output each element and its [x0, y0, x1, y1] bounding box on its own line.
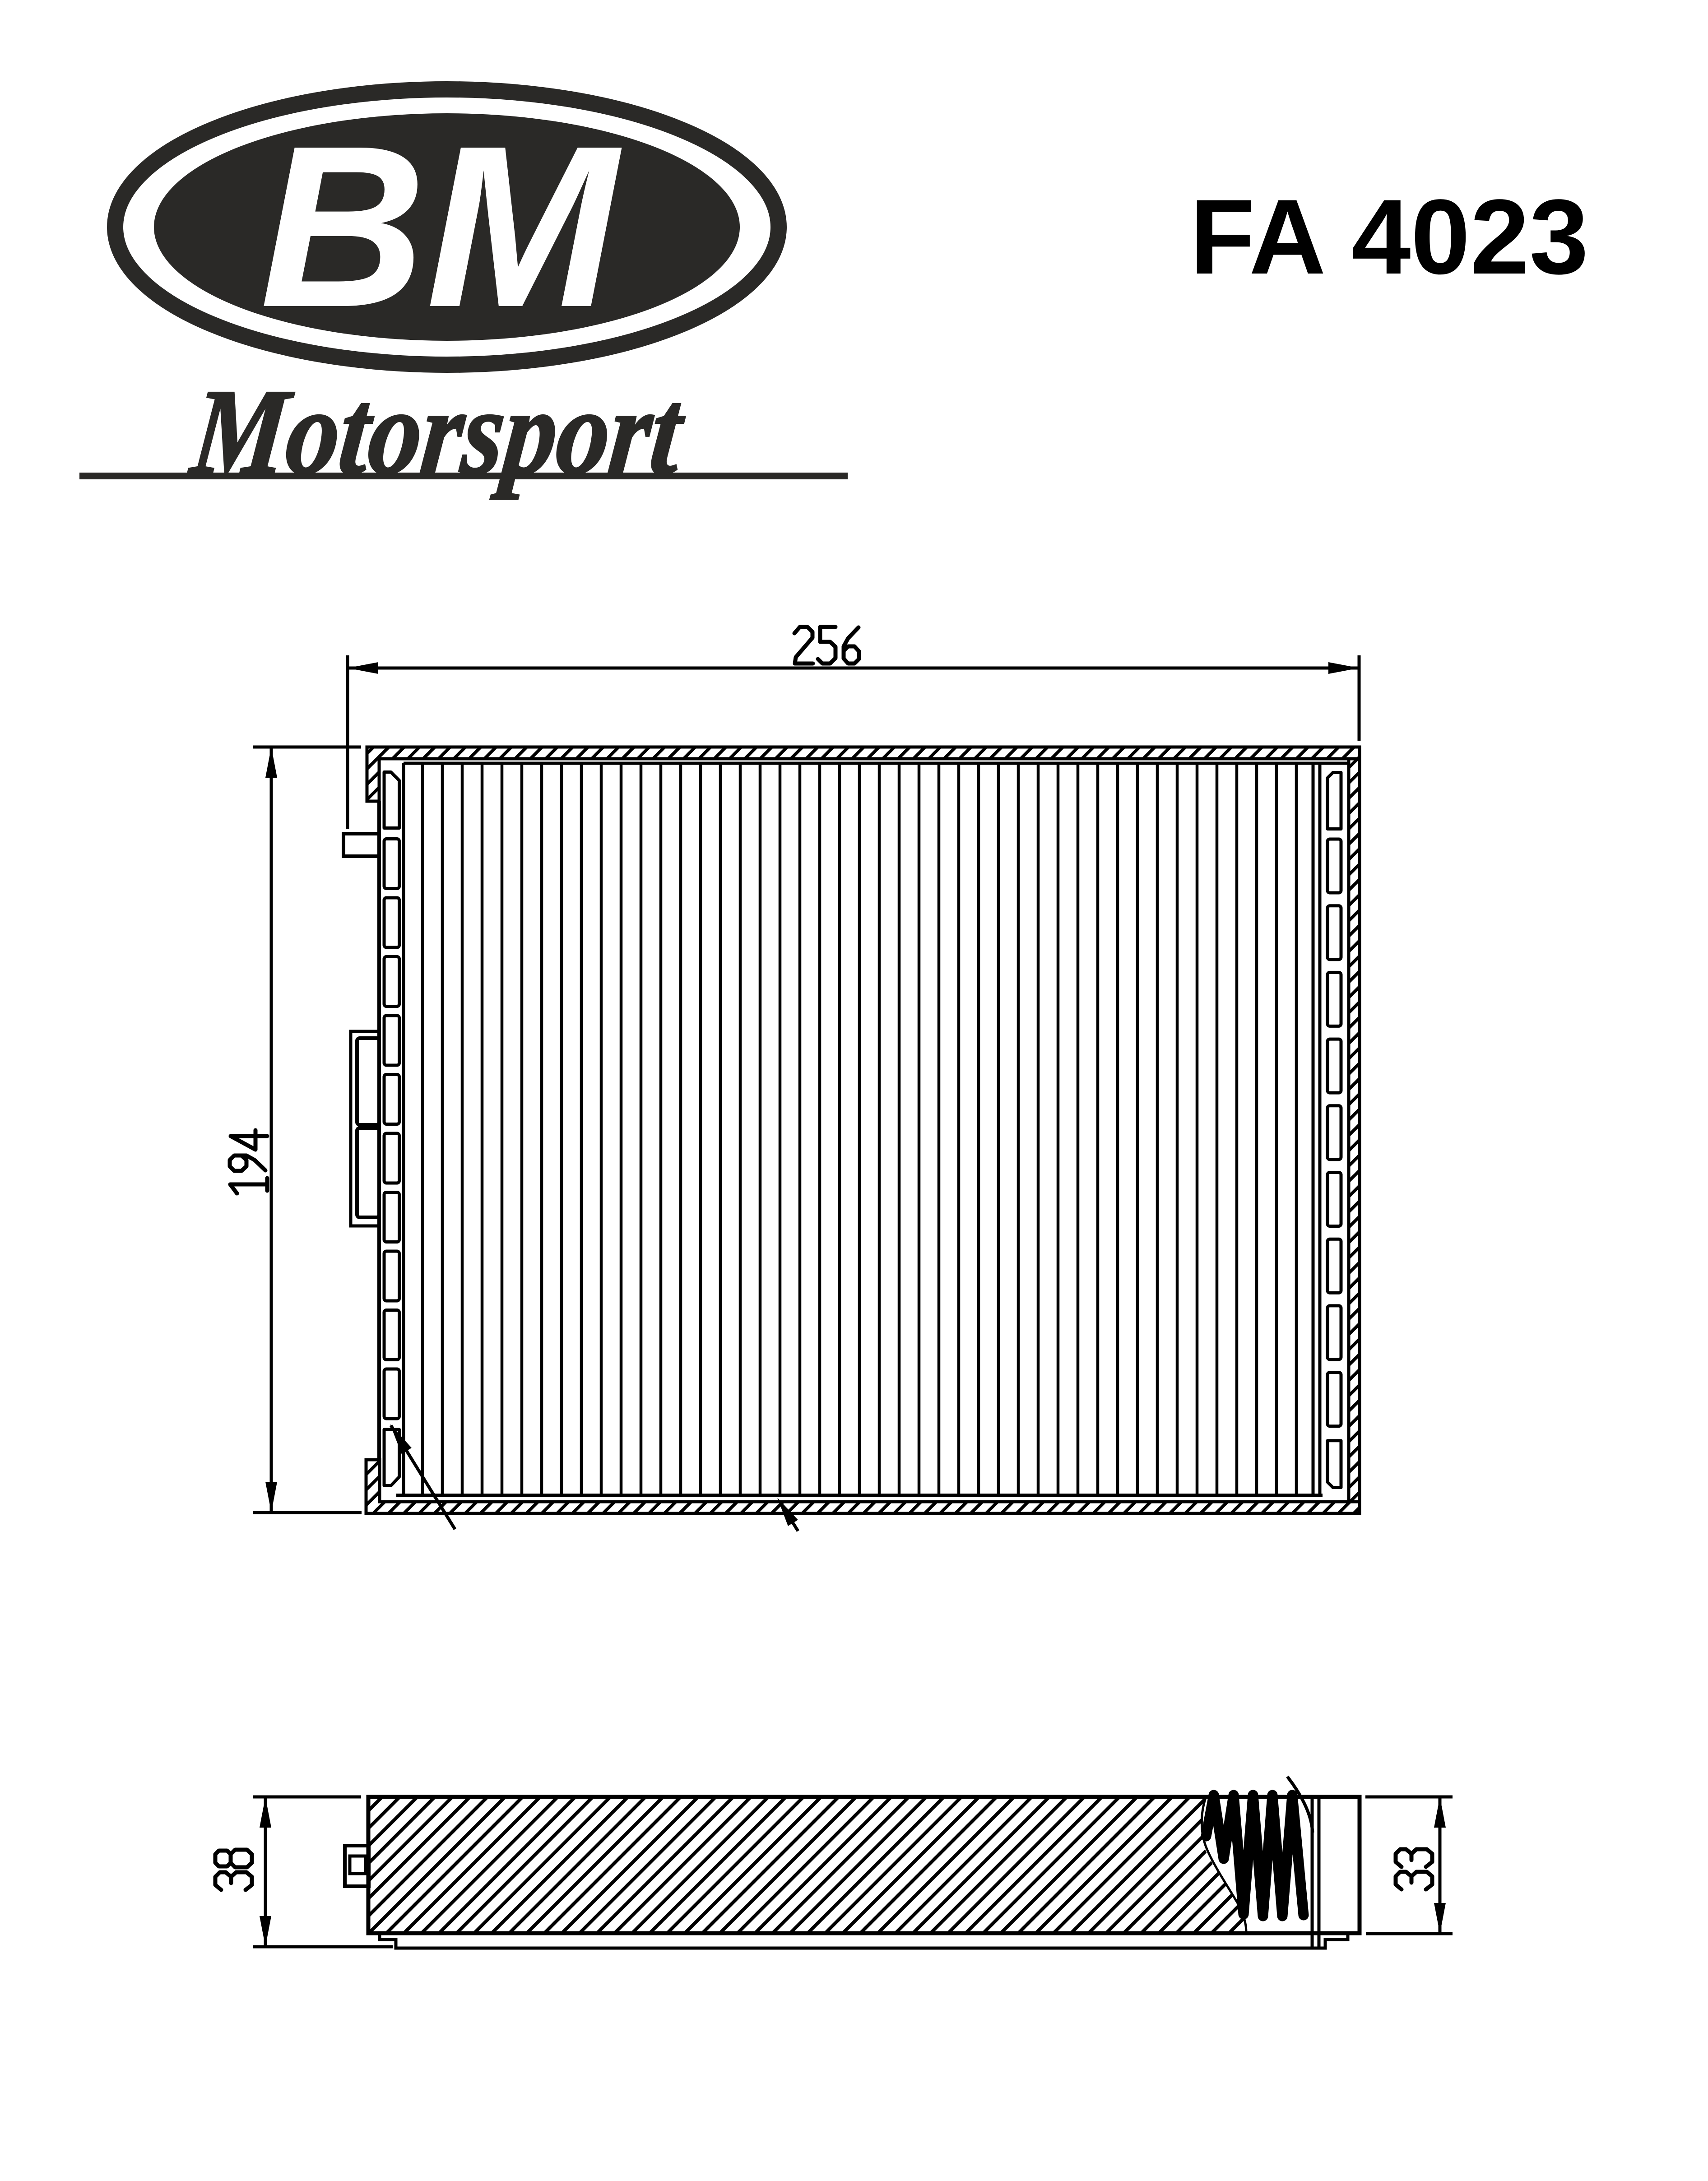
svg-text:FA 4023: FA 4023 — [1190, 177, 1588, 297]
svg-text:BM: BM — [260, 98, 624, 355]
svg-text:Motorsport: Motorsport — [185, 364, 692, 500]
